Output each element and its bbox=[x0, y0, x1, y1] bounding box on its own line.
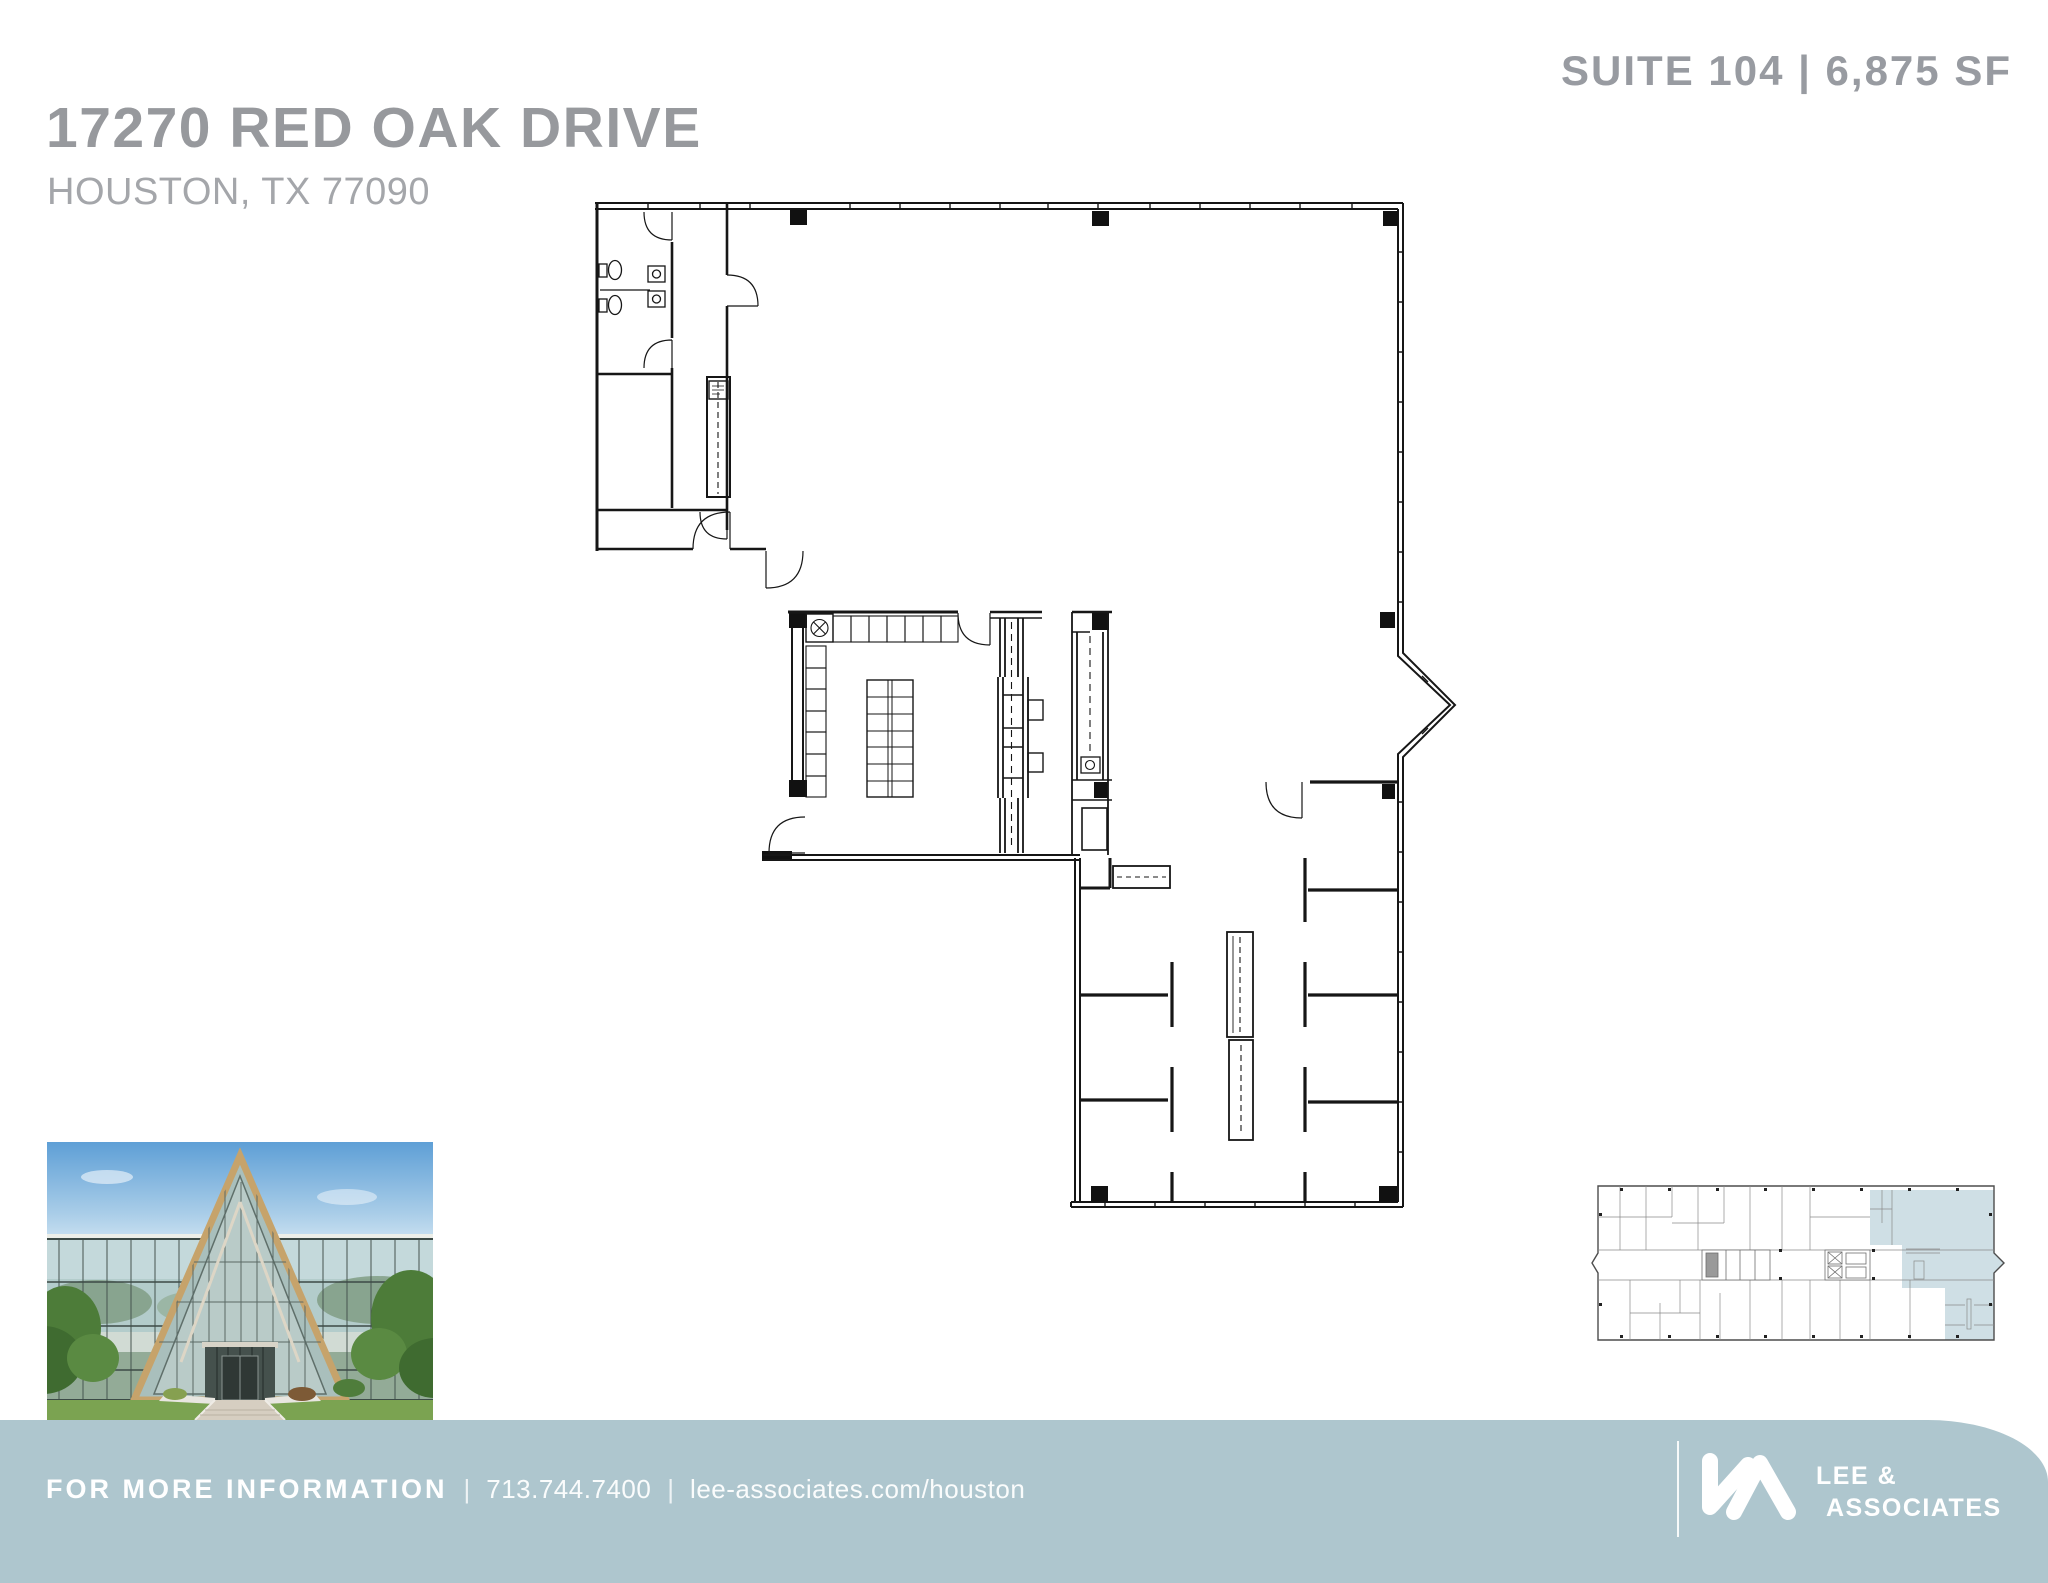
suite-highlight bbox=[1870, 1190, 2004, 1340]
corridor-two bbox=[1072, 612, 1112, 855]
page-address: HOUSTON, TX 77090 bbox=[47, 173, 430, 211]
break-tables bbox=[867, 680, 913, 797]
kitchen-counter bbox=[806, 614, 958, 797]
page-title: 17270 RED OAK DRIVE bbox=[46, 100, 702, 157]
lower-office-section bbox=[763, 782, 1398, 1202]
footer-info-label: FOR MORE INFORMATION bbox=[46, 1474, 447, 1505]
footer-separator: | bbox=[651, 1474, 690, 1505]
restroom-fixtures bbox=[599, 261, 665, 315]
brand-line1: LEE & bbox=[1816, 1464, 2002, 1489]
keyplan-cores bbox=[1702, 1250, 1870, 1280]
footer-website-link[interactable]: lee-associates.com/houston bbox=[690, 1474, 1025, 1505]
building-entrance-photo bbox=[47, 1142, 433, 1420]
flyer-page: 17270 RED OAK DRIVE HOUSTON, TX 77090 SU… bbox=[0, 0, 2048, 1583]
central-cabinets bbox=[1227, 932, 1253, 1140]
door-arcs bbox=[644, 212, 803, 588]
perimeter-window-walls bbox=[595, 203, 1455, 1207]
footer-contact-line: FOR MORE INFORMATION | 713.744.7400 | le… bbox=[46, 1474, 1025, 1505]
key-plan bbox=[1590, 1183, 2010, 1345]
footer-separator: | bbox=[447, 1474, 486, 1505]
footer-brand-name: LEE & ASSOCIATES bbox=[1816, 1464, 2002, 1521]
window-mullion-ticks bbox=[648, 203, 1428, 1207]
lee-associates-logo-icon bbox=[1698, 1450, 1808, 1522]
floor-plan-drawing bbox=[540, 180, 1480, 1230]
footer-brand-divider bbox=[1677, 1441, 1679, 1537]
corridor-one bbox=[990, 612, 1043, 853]
suite-size-label: SUITE 104 | 6,875 SF bbox=[1561, 50, 2012, 92]
restroom-block bbox=[597, 203, 803, 588]
footer-phone: 713.744.7400 bbox=[486, 1474, 651, 1505]
brand-line2: ASSOCIATES bbox=[1826, 1496, 2002, 1521]
break-room bbox=[769, 612, 990, 853]
